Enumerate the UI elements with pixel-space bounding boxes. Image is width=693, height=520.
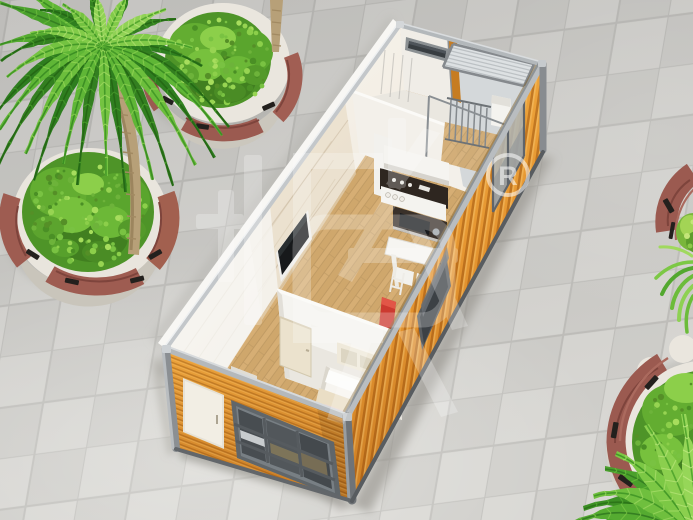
svg-text:R: R <box>498 161 518 191</box>
